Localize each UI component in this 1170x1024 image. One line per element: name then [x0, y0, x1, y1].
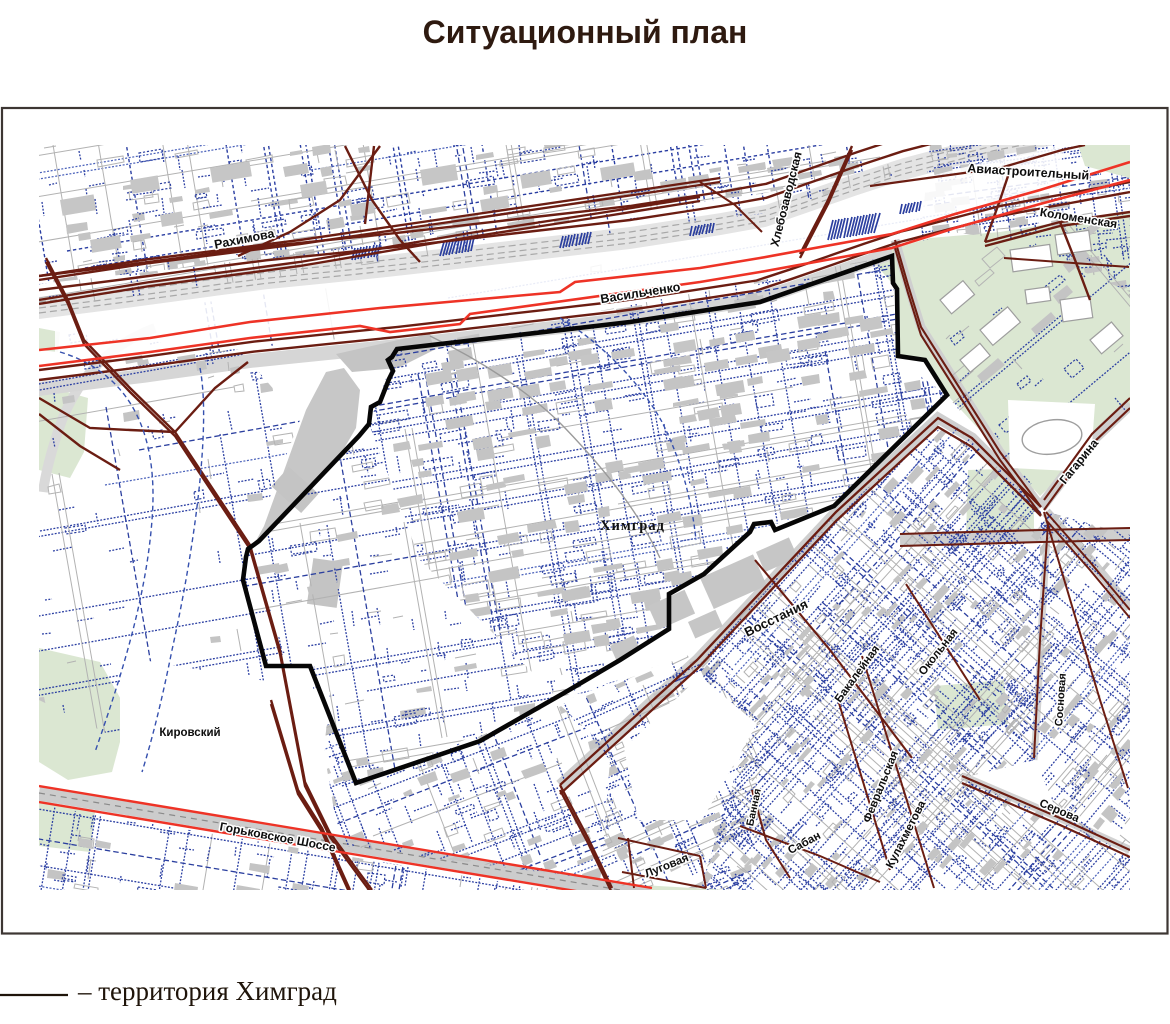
- svg-text:– территория Химград: – территория Химград: [77, 976, 337, 1006]
- svg-text:Кировский: Кировский: [159, 727, 220, 739]
- svg-text:Луговая: Луговая: [643, 852, 690, 880]
- svg-text:Ситуационный план: Ситуационный план: [423, 14, 748, 50]
- svg-text:Химград: Химград: [600, 518, 665, 534]
- svg-text:Сабан: Сабан: [786, 830, 823, 857]
- svg-text:Сосновая: Сосновая: [1053, 673, 1069, 727]
